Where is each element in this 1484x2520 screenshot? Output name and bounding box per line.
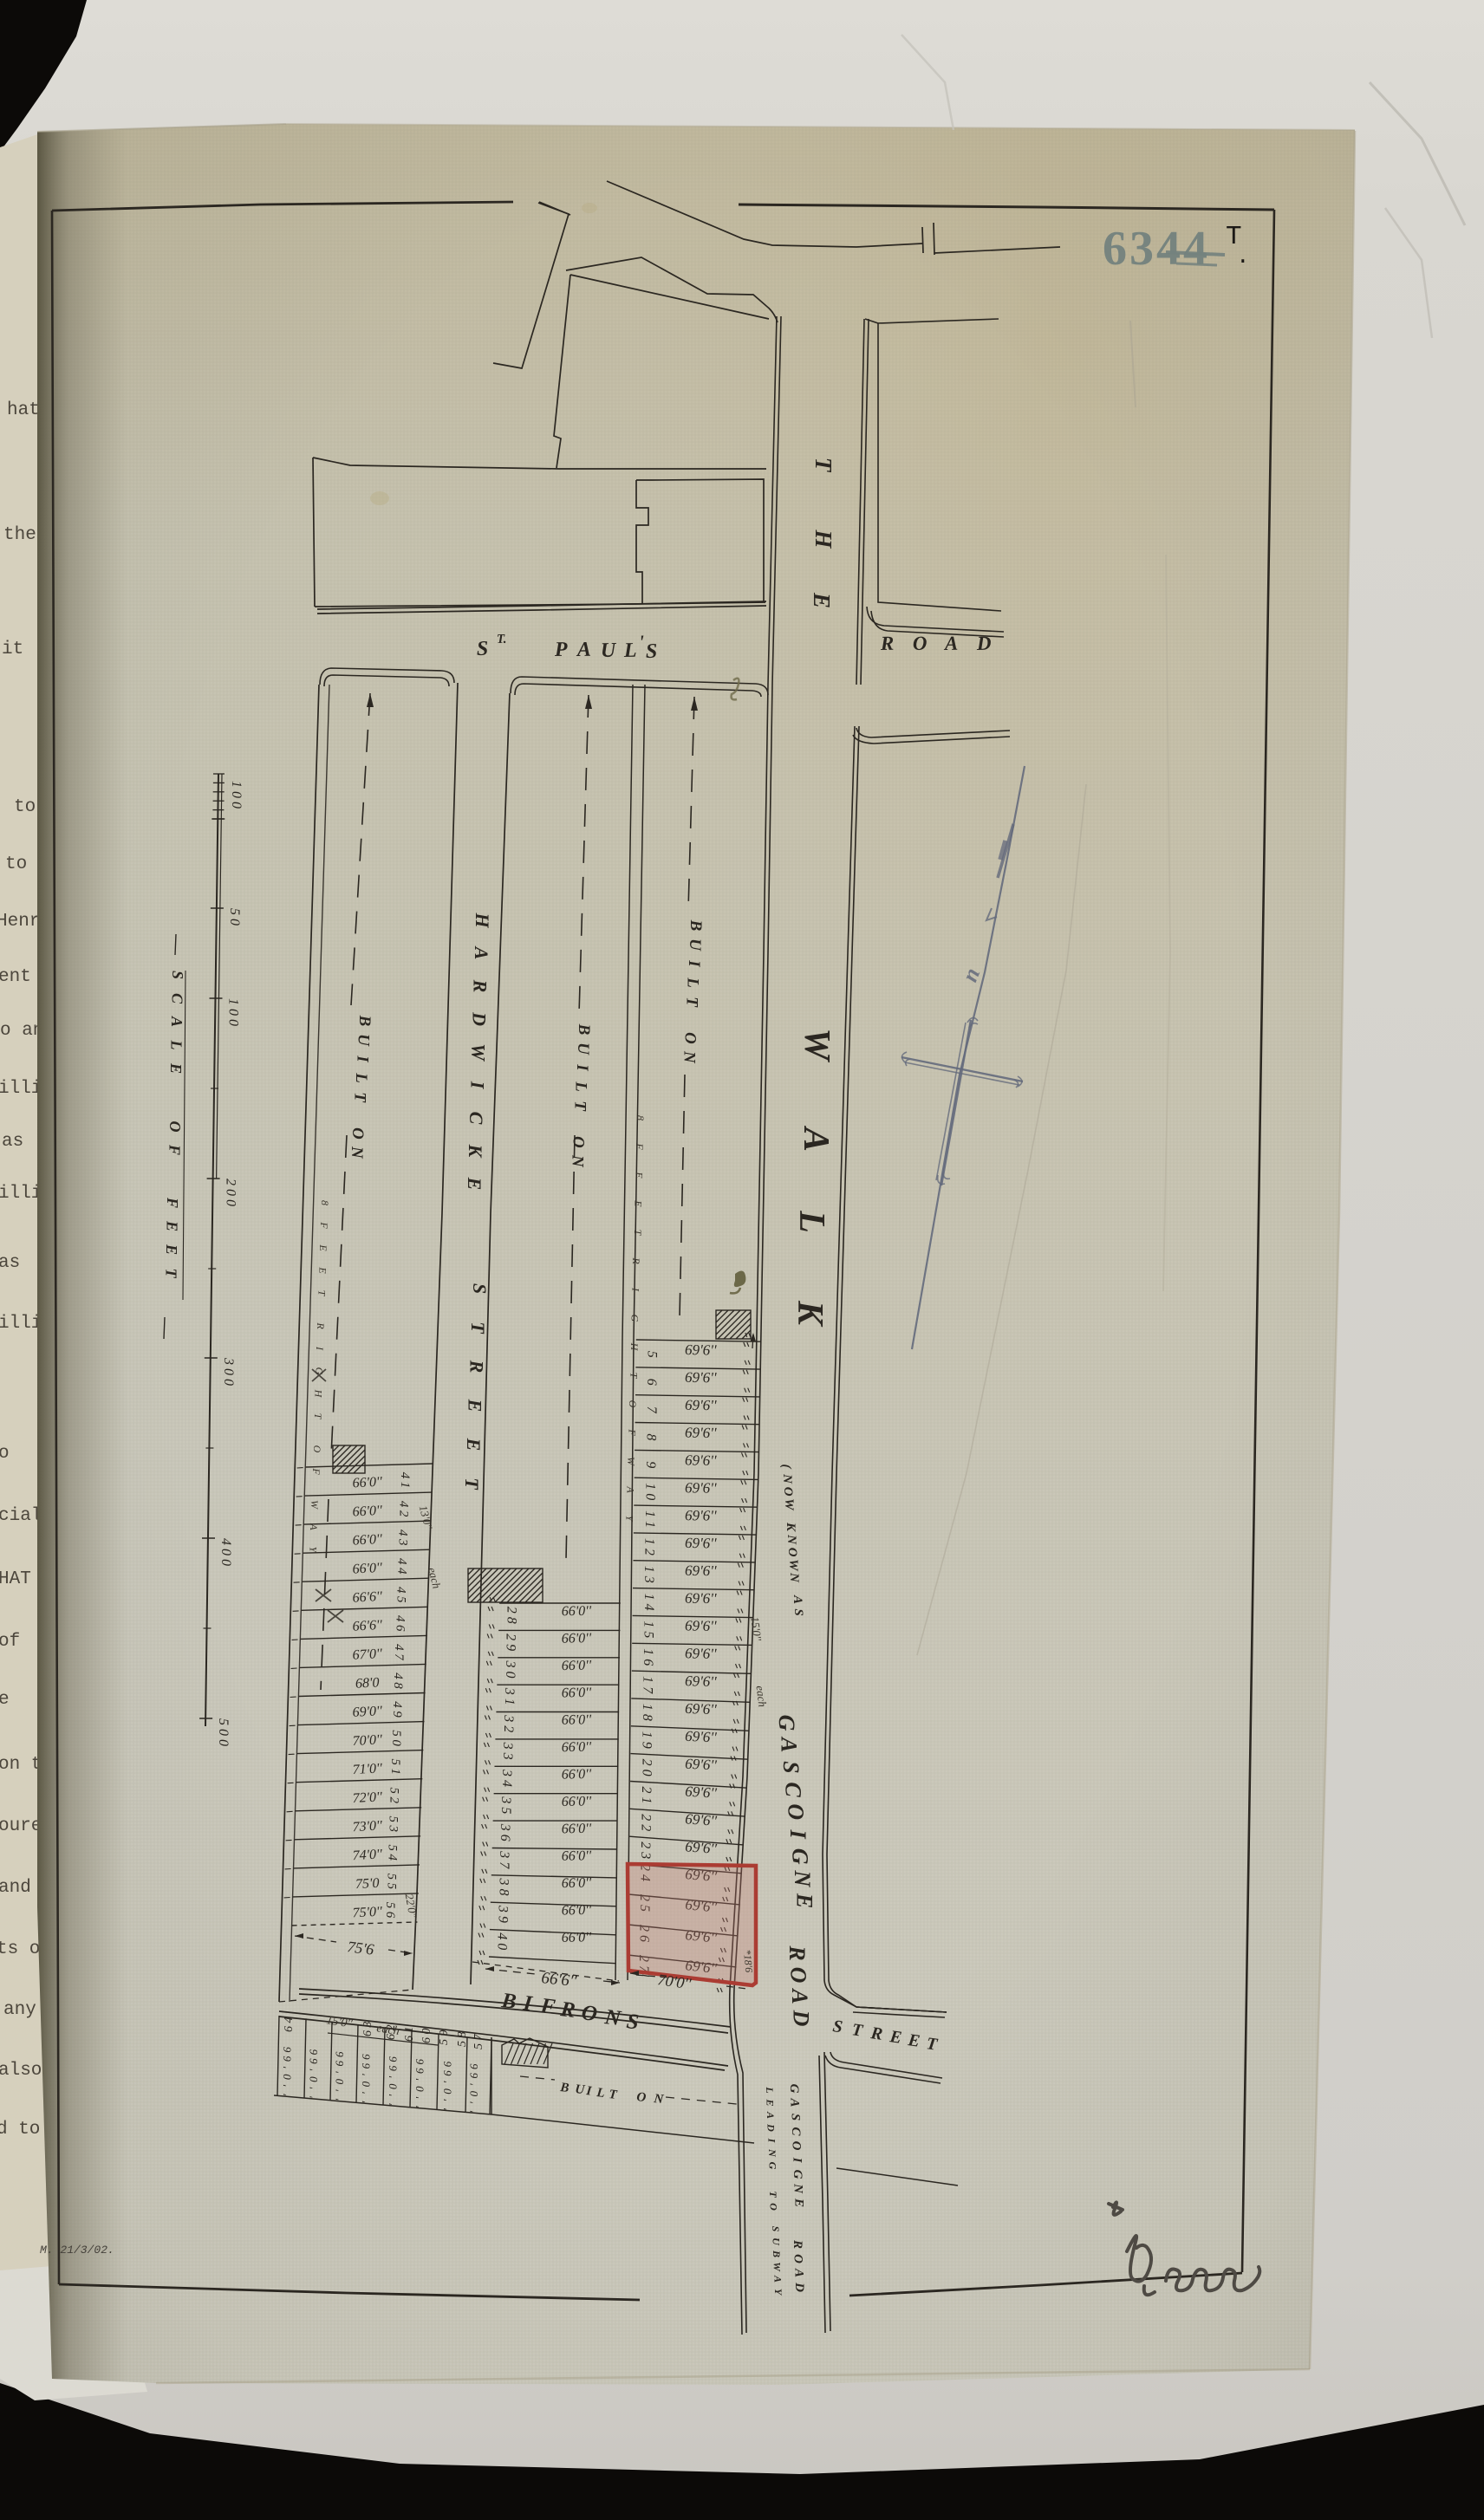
svg-text:66'0'': 66'0'' (562, 1767, 592, 1783)
svg-text:L: L (167, 1040, 185, 1050)
svg-text:U: U (355, 1034, 373, 1047)
svg-text:E: E (463, 1438, 485, 1452)
svg-text:': ' (467, 2111, 480, 2114)
svg-text:I: I (685, 959, 703, 967)
svg-text:4: 4 (393, 1615, 407, 1622)
svg-text:each: each (754, 1685, 770, 1707)
svg-text:G: G (774, 1715, 799, 1731)
svg-text:2: 2 (504, 1607, 519, 1614)
svg-text:D: D (789, 2010, 814, 2027)
svg-text:66'0'': 66'0'' (562, 1848, 592, 1864)
svg-text:I: I (353, 1055, 371, 1062)
svg-text:69'6'': 69'6'' (685, 1507, 717, 1524)
svg-text:O: O (636, 2090, 648, 2105)
svg-text:O: O (348, 1127, 367, 1140)
svg-text:1: 1 (403, 2027, 416, 2033)
svg-text:E: E (167, 1062, 185, 1074)
svg-text:6: 6 (281, 2047, 294, 2053)
svg-text:69'6'': 69'6'' (685, 1369, 717, 1387)
svg-text:8: 8 (319, 1200, 331, 1205)
svg-text:6: 6 (387, 2065, 400, 2071)
svg-text:T: T (467, 1322, 489, 1335)
svg-text:O: O (570, 1136, 588, 1148)
svg-text:of: of (0, 1632, 20, 1652)
svg-text:0: 0 (218, 1559, 233, 1566)
svg-text:D: D (469, 1011, 491, 1026)
svg-text:0: 0 (333, 2079, 346, 2085)
svg-text:U: U (771, 2237, 783, 2246)
svg-text:A: A (576, 639, 591, 661)
svg-text:66'0'': 66'0'' (562, 1875, 592, 1891)
svg-text:66'0'': 66'0'' (562, 1822, 592, 1837)
svg-text:6: 6 (283, 2026, 296, 2032)
svg-text:6: 6 (333, 2051, 346, 2057)
svg-text:1: 1 (642, 1510, 657, 1517)
svg-text:6: 6 (441, 2070, 454, 2076)
svg-text:N: N (791, 2183, 805, 2194)
svg-text:4: 4 (392, 1644, 406, 1651)
svg-text:as: as (0, 1253, 20, 1273)
svg-text:4: 4 (396, 1530, 410, 1536)
svg-text:O: O (785, 1548, 799, 1557)
svg-text:5: 5 (388, 1758, 402, 1765)
svg-text:5: 5 (387, 1787, 401, 1794)
svg-text:': ' (441, 2099, 454, 2101)
svg-text:1: 1 (642, 1538, 657, 1545)
svg-text:68'0: 68'0 (355, 1675, 380, 1691)
svg-text:2: 2 (501, 1725, 516, 1732)
svg-text:7: 7 (497, 1861, 511, 1869)
svg-text:L: L (596, 2086, 606, 2101)
svg-text:3: 3 (221, 1357, 236, 1365)
svg-text:E: E (888, 2027, 902, 2048)
svg-text:T: T (571, 1101, 589, 1112)
svg-text:6: 6 (307, 2049, 320, 2055)
svg-text:1: 1 (641, 1676, 655, 1683)
svg-text:G: G (767, 2162, 779, 2170)
svg-text:4: 4 (395, 1568, 409, 1575)
svg-text:5: 5 (386, 1845, 400, 1852)
svg-text:0: 0 (224, 1199, 238, 1206)
svg-text:W: W (625, 1457, 637, 1466)
svg-text:E: E (633, 1171, 645, 1179)
svg-text:69'6'': 69'6'' (685, 1838, 718, 1857)
svg-text:W: W (467, 1043, 489, 1062)
svg-text:as: as (2, 1132, 23, 1152)
svg-text:N: N (790, 1870, 815, 1888)
svg-text:illi: illi (0, 1314, 42, 1334)
svg-text:0: 0 (216, 1739, 231, 1746)
svg-text:5: 5 (384, 1874, 398, 1880)
svg-text:6: 6 (361, 2030, 374, 2036)
svg-text:6: 6 (498, 1835, 512, 1841)
svg-text:0: 0 (387, 2083, 400, 2089)
svg-text:75'6: 75'6 (347, 1938, 375, 1958)
svg-text:3: 3 (495, 1905, 510, 1913)
svg-text:1: 1 (502, 1698, 517, 1705)
svg-text:0: 0 (229, 791, 244, 798)
svg-text:L: L (684, 977, 702, 988)
svg-text:6: 6 (403, 2036, 416, 2042)
svg-text:66'0'': 66'0'' (352, 1532, 383, 1549)
svg-text:C: C (169, 993, 186, 1004)
svg-text:3: 3 (499, 1769, 514, 1776)
svg-text:R: R (470, 979, 491, 993)
svg-text:6: 6 (641, 1659, 655, 1666)
svg-text:3: 3 (387, 1825, 400, 1833)
svg-text:M. 21/3/02.: M. 21/3/02. (40, 2244, 114, 2257)
svg-text:O: O (681, 1032, 700, 1044)
svg-text:1: 1 (640, 1731, 654, 1738)
svg-text:o: o (0, 1444, 10, 1464)
svg-text:67'0'': 67'0'' (352, 1646, 383, 1663)
svg-text:0: 0 (643, 1493, 658, 1500)
svg-text:N: N (784, 1534, 798, 1545)
svg-text:C: C (465, 1112, 487, 1125)
svg-text:2: 2 (504, 1633, 518, 1640)
svg-text:O: O (913, 633, 927, 654)
svg-text:R: R (880, 633, 895, 654)
svg-text:S: S (646, 640, 658, 663)
svg-text:4: 4 (641, 1604, 656, 1611)
svg-text:6: 6 (413, 2068, 426, 2074)
svg-text:hat: hat (7, 400, 40, 420)
svg-text:O: O (783, 1803, 808, 1820)
svg-text:A: A (796, 1125, 836, 1152)
svg-text:oure: oure (0, 1816, 42, 1836)
svg-text:G: G (787, 1848, 812, 1865)
svg-text:B: B (771, 2250, 783, 2257)
svg-text:G: G (629, 1315, 641, 1322)
svg-text:5: 5 (498, 1807, 513, 1814)
svg-text:4: 4 (397, 1501, 411, 1508)
svg-text:A: A (765, 2111, 777, 2119)
svg-text:69'6'': 69'6'' (685, 1700, 717, 1718)
svg-text:W: W (797, 1028, 836, 1062)
svg-text:F: F (310, 1467, 322, 1475)
svg-text:0: 0 (420, 2029, 433, 2035)
svg-text:3: 3 (501, 1714, 516, 1722)
svg-text:G: G (791, 2170, 804, 2179)
svg-text:O: O (580, 2001, 598, 2026)
svg-text:0: 0 (639, 1770, 654, 1776)
svg-text:A: A (771, 2275, 784, 2283)
svg-text:S: S (770, 2226, 782, 2232)
svg-text:69'6'': 69'6'' (685, 1425, 717, 1442)
svg-text:2: 2 (639, 1759, 654, 1766)
svg-text:E: E (633, 1199, 645, 1207)
svg-text:5: 5 (384, 1883, 398, 1890)
svg-text:W: W (782, 1498, 796, 1511)
svg-text:E: E (465, 1399, 486, 1413)
svg-text:T.: T. (497, 633, 507, 646)
svg-text:': ' (441, 2108, 454, 2111)
svg-text:A: A (791, 1594, 804, 1604)
svg-text:A: A (791, 2268, 805, 2277)
svg-text:1: 1 (643, 1483, 658, 1490)
svg-text:I: I (785, 1828, 810, 1839)
svg-text:66'0'': 66'0'' (562, 1604, 592, 1620)
svg-text:C: C (781, 1782, 806, 1797)
svg-text:cial: cial (0, 1506, 42, 1526)
svg-text:S: S (778, 1761, 804, 1773)
svg-text:': ' (413, 2079, 426, 2082)
svg-text:5: 5 (438, 2039, 451, 2045)
svg-text:6: 6 (467, 2073, 480, 2079)
svg-text:3: 3 (498, 1823, 512, 1831)
svg-text:A: A (943, 633, 959, 654)
svg-text:66'0'': 66'0'' (562, 1903, 592, 1919)
svg-text:3: 3 (361, 2022, 374, 2029)
svg-text:A: A (624, 1485, 636, 1493)
svg-text:2: 2 (387, 1796, 401, 1803)
svg-text:66'6'': 66'6'' (540, 1969, 578, 1991)
svg-text:0: 0 (389, 1739, 403, 1746)
svg-text:69'6'': 69'6'' (685, 1617, 717, 1634)
svg-text:B: B (355, 1015, 374, 1027)
svg-text:E: E (765, 2098, 777, 2106)
svg-text:0: 0 (307, 2076, 320, 2082)
svg-text:66'0'': 66'0'' (562, 1740, 592, 1756)
svg-text:8: 8 (456, 2032, 469, 2038)
svg-text:it: it (2, 640, 23, 659)
svg-text:5: 5 (394, 1596, 407, 1603)
svg-text:2: 2 (639, 1787, 654, 1794)
svg-text:3: 3 (503, 1660, 517, 1668)
svg-text:d to: d to (0, 2120, 40, 2140)
svg-text:L: L (572, 1081, 590, 1092)
svg-text:66'0'': 66'0'' (352, 1475, 383, 1491)
svg-text:6: 6 (441, 2061, 454, 2067)
svg-text:': ' (333, 2099, 346, 2101)
svg-text:4: 4 (398, 1472, 412, 1479)
svg-text:0: 0 (226, 1019, 241, 1026)
svg-text:on t: on t (0, 1755, 42, 1775)
svg-text:O: O (781, 1487, 795, 1497)
svg-text:72'0'': 72'0'' (352, 1789, 383, 1806)
svg-text:69'6'': 69'6'' (685, 1645, 717, 1662)
svg-text:I: I (790, 2157, 804, 2164)
svg-text:illi: illi (0, 1079, 42, 1099)
svg-text:also: also (0, 2061, 42, 2081)
svg-text:R: R (791, 2239, 804, 2249)
svg-text:A: A (471, 945, 492, 960)
svg-text:4: 4 (494, 1932, 509, 1939)
svg-text:6: 6 (393, 1625, 407, 1632)
svg-text:H: H (810, 529, 836, 549)
svg-text:69'6'': 69'6'' (685, 1672, 717, 1690)
svg-text:5: 5 (383, 1902, 397, 1909)
svg-text:8: 8 (643, 1433, 658, 1440)
svg-text:66'0'': 66'0'' (562, 1712, 592, 1728)
svg-text:F: F (538, 1994, 556, 2019)
svg-text:H: H (313, 1389, 325, 1399)
svg-text:0: 0 (216, 1729, 231, 1736)
svg-text:': ' (360, 2101, 373, 2103)
svg-text:R: R (869, 2023, 883, 2044)
svg-text:S: S (788, 2114, 802, 2121)
svg-text:U: U (686, 939, 704, 951)
svg-text:E: E (791, 2198, 805, 2207)
svg-text:9: 9 (390, 1711, 404, 1718)
svg-text:0: 0 (441, 2088, 454, 2095)
svg-text:6: 6 (644, 1379, 659, 1386)
svg-text:W: W (309, 1500, 321, 1510)
svg-text:69'6'': 69'6'' (685, 1535, 717, 1552)
svg-text:O: O (791, 2254, 805, 2263)
svg-text:66'6'': 66'6'' (352, 1618, 383, 1634)
svg-text:66'6'': 66'6'' (352, 1589, 383, 1606)
svg-text:6: 6 (360, 2054, 373, 2060)
svg-text:7: 7 (644, 1406, 659, 1414)
svg-text:4: 4 (391, 1672, 405, 1679)
svg-text:66'0'': 66'0'' (562, 1658, 592, 1673)
svg-text:0: 0 (227, 919, 242, 926)
svg-text:69'6'': 69'6'' (685, 1590, 717, 1607)
svg-text:7: 7 (641, 1686, 655, 1694)
svg-text:66'0'': 66'0'' (562, 1930, 592, 1945)
svg-text:A: A (787, 1987, 812, 2004)
svg-text:1: 1 (229, 781, 244, 788)
svg-text:N: N (766, 2148, 778, 2158)
svg-text:W: W (771, 2262, 784, 2272)
svg-text:4: 4 (395, 1558, 409, 1565)
svg-text:0: 0 (229, 802, 244, 809)
svg-text:6344: 6344 (1103, 222, 1210, 276)
svg-text:.: . (1236, 244, 1250, 270)
svg-text:75'0: 75'0 (355, 1876, 380, 1892)
svg-text:5: 5 (387, 1816, 400, 1823)
svg-text:3: 3 (498, 1796, 513, 1803)
svg-text:F: F (626, 1428, 638, 1436)
svg-text:2: 2 (397, 1510, 411, 1517)
svg-text:O: O (627, 1400, 639, 1408)
svg-text:0: 0 (413, 2086, 426, 2092)
svg-text:B: B (575, 1023, 593, 1036)
svg-text:73'0'': 73'0'' (352, 1818, 383, 1835)
svg-text:T: T (683, 997, 701, 1008)
svg-text:to: to (5, 854, 27, 874)
svg-text:6: 6 (307, 2058, 320, 2064)
svg-text:E: E (809, 592, 835, 608)
svg-text:69'6'': 69'6'' (685, 1756, 718, 1774)
svg-text:T: T (351, 1092, 369, 1103)
svg-text:': ' (467, 2101, 480, 2104)
svg-text:0: 0 (281, 2074, 294, 2080)
svg-text:2: 2 (638, 1841, 653, 1848)
svg-text:1: 1 (226, 998, 241, 1005)
svg-text:B: B (499, 1989, 517, 2014)
svg-text:R: R (465, 1360, 487, 1374)
svg-text:I: I (573, 1063, 591, 1071)
svg-text:3: 3 (500, 1752, 515, 1760)
svg-text:9: 9 (504, 1644, 518, 1651)
svg-text:71'0'': 71'0'' (352, 1761, 383, 1777)
svg-text:K: K (784, 1522, 797, 1532)
svg-text:B: B (559, 2081, 570, 2095)
svg-text:N: N (780, 1473, 794, 1484)
svg-text:4: 4 (499, 1780, 514, 1787)
svg-text:': ' (387, 2095, 400, 2097)
svg-text:6: 6 (413, 2058, 426, 2064)
svg-text:69'6'': 69'6'' (685, 1397, 717, 1414)
svg-text:': ' (387, 2076, 400, 2079)
svg-text:I: I (466, 1081, 488, 1090)
svg-text:': ' (281, 2067, 294, 2069)
svg-text:5: 5 (227, 908, 242, 915)
svg-text:4: 4 (283, 2017, 296, 2023)
svg-text:5: 5 (389, 1730, 403, 1737)
svg-text:': ' (413, 2106, 426, 2108)
svg-text:R: R (784, 1945, 810, 1960)
svg-text:0: 0 (221, 1368, 236, 1375)
svg-text:': ' (413, 2097, 426, 2100)
svg-text:O: O (311, 1445, 323, 1453)
svg-text:S: S (469, 1283, 491, 1294)
svg-text:E: E (163, 1244, 180, 1255)
svg-text:9: 9 (438, 2030, 451, 2036)
svg-text:9: 9 (643, 1461, 658, 1468)
svg-text:6: 6 (360, 2062, 373, 2069)
svg-text:6: 6 (383, 1912, 397, 1919)
svg-text:69'6'': 69'6'' (685, 1783, 718, 1802)
svg-text:': ' (639, 631, 645, 653)
svg-text:E: E (317, 1244, 329, 1251)
svg-text:6: 6 (281, 2056, 294, 2062)
svg-text:70'0'': 70'0'' (352, 1732, 383, 1749)
svg-text:1: 1 (398, 1482, 412, 1489)
svg-text:4: 4 (386, 1854, 400, 1861)
svg-text:0: 0 (503, 1672, 517, 1679)
svg-text:O: O (790, 2141, 804, 2151)
svg-text:to: to (14, 797, 36, 817)
svg-text:69'6'': 69'6'' (685, 1341, 717, 1359)
svg-text:': ' (441, 2081, 454, 2083)
svg-text:69'6'': 69'6'' (685, 1479, 717, 1497)
svg-text:2: 2 (638, 1814, 653, 1821)
svg-text:74'0'': 74'0'' (352, 1847, 383, 1863)
svg-text:5: 5 (645, 1351, 660, 1358)
svg-text:2: 2 (638, 1824, 653, 1831)
svg-text:8: 8 (504, 1617, 519, 1624)
svg-text:any: any (3, 2000, 36, 2020)
svg-text:69'0'': 69'0'' (352, 1704, 383, 1720)
svg-text:1: 1 (641, 1594, 656, 1601)
svg-text:S: S (477, 638, 489, 660)
svg-text:3: 3 (638, 1851, 653, 1859)
svg-text:the: the (3, 525, 36, 545)
svg-text:1: 1 (639, 1797, 654, 1804)
svg-text:T: T (767, 2191, 779, 2198)
svg-text:69'6'': 69'6'' (685, 1728, 718, 1746)
svg-text:8: 8 (635, 1115, 647, 1120)
svg-text:': ' (387, 2103, 400, 2106)
svg-text:U: U (574, 1042, 592, 1055)
svg-text:T: T (810, 458, 836, 473)
svg-text:e: e (0, 1690, 10, 1710)
svg-text:4: 4 (394, 1587, 407, 1594)
svg-text:8: 8 (391, 1682, 405, 1689)
svg-text:E: E (164, 1220, 181, 1231)
svg-text:O: O (166, 1121, 184, 1133)
svg-text:3: 3 (500, 1742, 515, 1750)
svg-text:': ' (360, 2074, 373, 2076)
svg-text:1: 1 (641, 1620, 655, 1627)
svg-text:HAT: HAT (0, 1569, 31, 1589)
svg-text:': ' (307, 2096, 320, 2099)
svg-text:3: 3 (497, 1850, 511, 1858)
svg-text:8: 8 (640, 1714, 654, 1721)
